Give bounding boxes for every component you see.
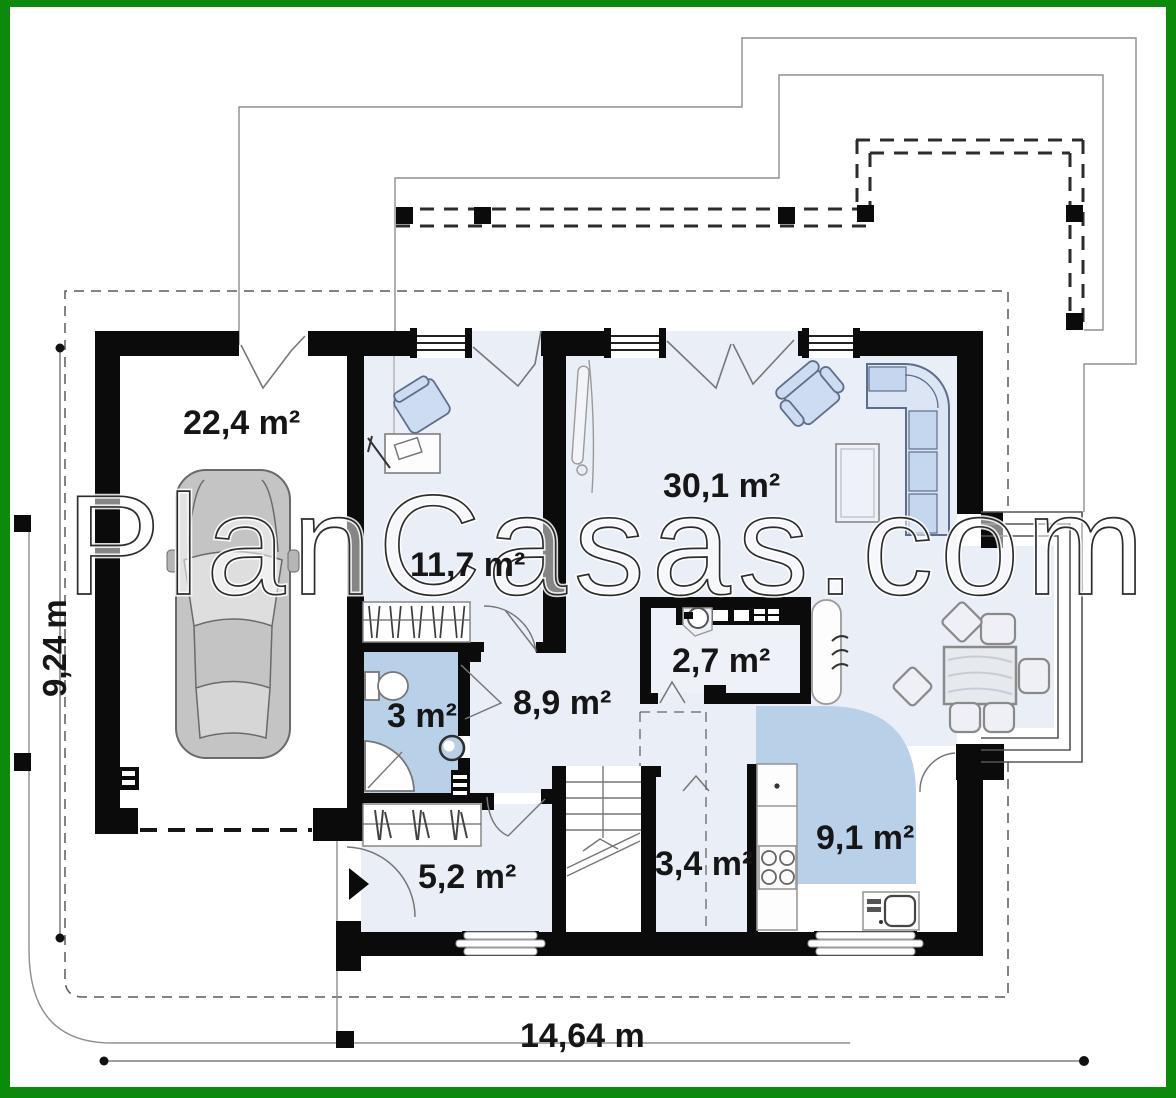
svg-text:14,64 m: 14,64 m — [520, 1017, 645, 1055]
svg-text:9,1 m²: 9,1 m² — [816, 819, 914, 857]
svg-text:5,2 m²: 5,2 m² — [418, 858, 516, 896]
svg-text:PlanCasas.com: PlanCasas.com — [66, 466, 1151, 625]
svg-text:30,1 m²: 30,1 m² — [663, 467, 780, 505]
svg-text:11,7 m²: 11,7 m² — [410, 546, 525, 584]
svg-text:3 m²: 3 m² — [387, 697, 457, 735]
svg-text:2,7 m²: 2,7 m² — [672, 642, 770, 680]
svg-text:3,4 m²: 3,4 m² — [655, 845, 753, 883]
svg-text:8,9 m²: 8,9 m² — [513, 684, 611, 722]
svg-text:22,4 m²: 22,4 m² — [183, 404, 300, 442]
